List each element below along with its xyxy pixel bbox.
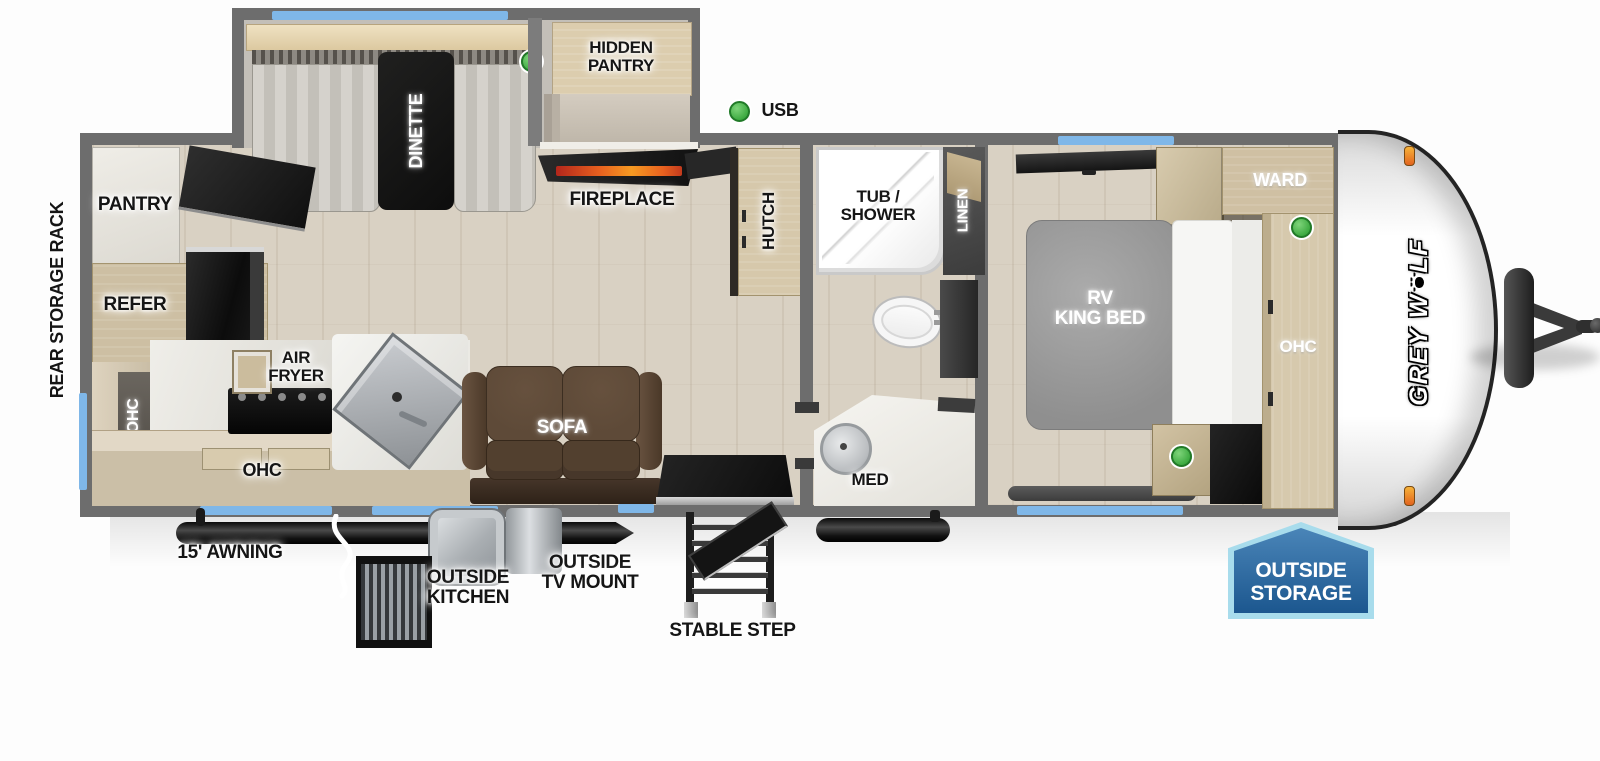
dinette-bench-right [454,64,536,212]
hitch-coupler-knob [1590,318,1600,333]
ward-label: WARD [1240,170,1320,190]
usb-label: USB [755,100,805,120]
pantry-label: PANTRY [92,195,178,215]
sofa-armrest-left [462,372,488,470]
bedroom-ohc-handle-1 [1268,300,1273,314]
hutch-handle-2 [742,236,746,248]
stove-knobs [238,393,246,401]
hutch-label: HUTCH [760,166,778,276]
awning-roller [176,522,634,544]
bedroom-ohc-handle-2 [1268,392,1273,406]
bedroom-window-bottom [1017,506,1183,515]
rv-king-bed-label: RV KING BED [1040,288,1160,330]
bedroom-tv-mount-nub [1082,170,1096,175]
awning-hook [196,508,205,526]
fireplace-label: FIREPLACE [552,190,692,210]
marker-light-top [1404,146,1415,166]
vanity-sink-drain [840,443,847,450]
dinette-headboard [246,24,540,51]
sink-drain [392,392,402,402]
step-foot-right [762,602,776,618]
brand-logo: GREY WLF [1404,206,1434,438]
tub-shower-label: TUB / SHOWER [818,186,938,226]
bed-pillows [1172,220,1234,430]
outside-storage-badge-inner: OUTSIDE STORAGE [1234,528,1368,613]
stable-step-label: STABLE STEP [660,620,805,642]
hutch-handle-1 [742,210,746,222]
slideout-divider-wall [528,18,542,146]
marker-light-bottom [1404,486,1415,506]
fireplace-counter-edge [540,142,698,149]
hidden-pantry-steps [544,94,690,142]
outside-tv-mount-label: OUTSIDE TV MOUNT [530,550,650,596]
bed-sheet-edge [1232,220,1262,428]
tv-mount-roller [816,518,950,542]
rear-storage-rack-label: REAR STORAGE RACK [47,185,67,415]
hitch-jack-post [1504,268,1534,388]
bedroom-window-top [1058,136,1174,145]
linen-label: LINEN [956,166,971,256]
tv-mount-nub [930,510,940,522]
dinette-label: DINETTE [406,56,426,206]
floorplan-canvas: { "brand": { "part1": "GREY W", "part2":… [0,0,1600,761]
dinette-window [272,11,508,20]
sofa-seat-cushion-right [562,440,640,480]
fireplace-flame [556,166,682,176]
step-rung-5 [692,588,768,594]
sofa-label: SOFA [522,418,602,438]
bath-door-stop-upper [795,402,819,413]
kitchen-window-bottom-1 [200,506,332,515]
wolf-paw-icon [1415,277,1424,288]
awning-label: 15' AWNING [160,542,300,564]
sofa-base [470,478,662,504]
sofa-seat-cushion-left [486,440,564,480]
usb-indicator-main [729,101,750,122]
vanity-sink [820,423,872,475]
brand-text-lf: LF [1405,238,1434,273]
usb-indicator-nightstand [1171,446,1192,467]
stable-step-assembly [686,512,774,618]
bedroom-ohc-cabinet [1262,213,1334,509]
bath-pocket-door [940,280,978,378]
nightstand-black-unit [1210,424,1262,504]
bedroom-ohc-label: OHC [1272,338,1324,356]
step-foot-left [684,602,698,618]
rear-window [79,393,87,490]
refer-label: REFER [92,295,178,315]
outside-kitchen-label: OUTSIDE KITCHEN [418,565,518,611]
med-label: MED [830,470,910,490]
door-side-window [618,504,654,513]
vanity-edge-dark [938,397,976,413]
kitchen-ohc-label: OHC [222,460,302,480]
hidden-pantry-label: HIDDEN PANTRY [560,28,682,86]
bath-wall-left-lower [800,468,813,506]
air-fryer-label: AIR FRYER [246,348,346,386]
brand-text-grey-w: GREY W [1405,293,1434,406]
usb-indicator-bedroom-ohc [1291,217,1312,238]
bath-wall-left-upper [800,143,813,411]
outside-storage-label: OUTSIDE STORAGE [1250,559,1351,613]
